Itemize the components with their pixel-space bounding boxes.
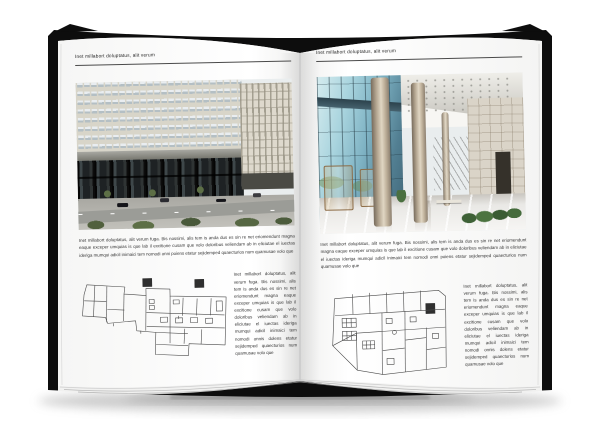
planter-row (460, 201, 522, 229)
lobby-column (370, 77, 392, 227)
book-mockup: Inet millabort doluptatus, alit verum In… (0, 0, 600, 446)
street-tree (149, 189, 156, 196)
cover-corner-right (502, 24, 546, 32)
revolving-door (324, 166, 354, 211)
left-floor-plan-drawing (80, 271, 230, 364)
right-header-rule (316, 56, 522, 62)
left-body-text: Inet millabort doluptatus, alit verum fu… (79, 232, 295, 259)
car (253, 193, 261, 197)
left-plan-section: Inet millabort doluptatus, alit verum fu… (80, 270, 298, 365)
tree-line (78, 209, 294, 230)
right-plan-section: Inet millabort doluptatus, alit verum fu… (321, 281, 529, 386)
building-exterior-photo (76, 78, 295, 229)
car (216, 198, 226, 202)
left-side-note: Inet millabort doluptatus, alit verum fu… (234, 270, 298, 357)
right-page: Inet millabort doluptatus, alit verum I (316, 46, 530, 386)
lobby-interior-photo (317, 72, 527, 234)
building-storefront (77, 157, 244, 201)
street-tree (104, 190, 111, 197)
building-facade (76, 80, 244, 153)
left-page: Inet millabort doluptatus, alit verum In… (75, 50, 297, 364)
right-floor-plan-drawing (321, 283, 459, 386)
car (160, 198, 169, 202)
lobby-bench (437, 199, 462, 203)
indoor-plant (395, 190, 407, 204)
cover-corner-left (54, 24, 98, 32)
right-body-text: Inet millabort doluptatus, alit verum fu… (320, 236, 527, 271)
stair-railing (433, 136, 469, 190)
right-side-note: Inet millabort doluptatus, alit verum fu… (463, 281, 529, 368)
neighbor-building (240, 83, 294, 187)
car (117, 203, 128, 207)
neighbor-building-base (242, 173, 294, 190)
left-header-rule (75, 60, 291, 66)
